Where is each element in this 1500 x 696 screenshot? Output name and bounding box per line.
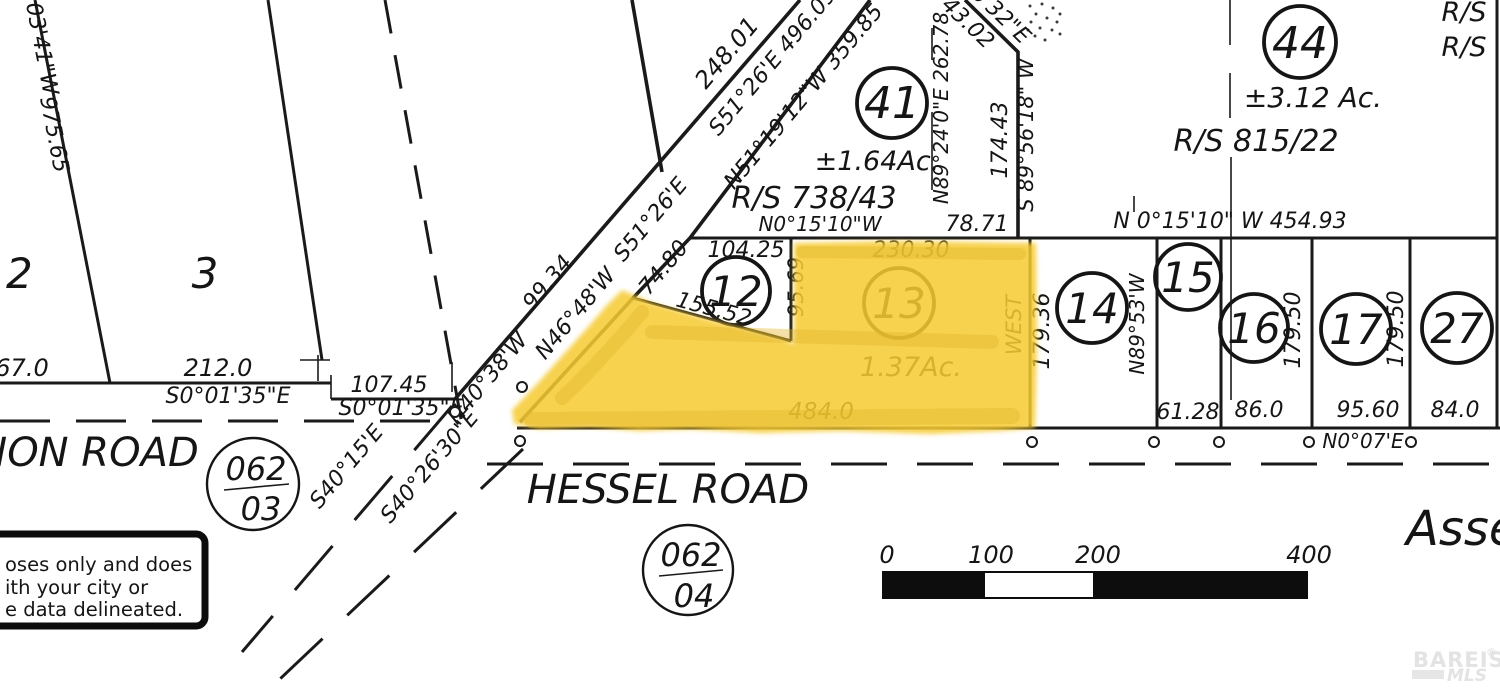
parcel-number-27: 27 xyxy=(1430,304,1484,353)
page-ref-top: 062 xyxy=(225,450,286,488)
bearing-label: S40°26'30"E xyxy=(376,405,485,528)
road-funnel-line xyxy=(632,0,662,172)
parcel-number-44: 44 xyxy=(1272,18,1328,69)
plat-map-canvas: 03'41"W 975.65 2 3 67.0 212.0 S0°01'35"E… xyxy=(0,0,1500,696)
stipple-dots xyxy=(1027,3,1062,42)
bareis-mls-watermark: BAREIS ® MLS xyxy=(1412,646,1500,686)
distance-label: 84.0 xyxy=(1431,398,1480,423)
bearing-label: S 89°56'18" W xyxy=(1014,57,1038,212)
disclaimer-line-3: e data delineated. xyxy=(5,598,183,621)
distance-label: 78.71 xyxy=(946,212,1009,237)
page-ref-bottom: 03 xyxy=(241,490,282,528)
page-ref-bottom: 04 xyxy=(674,577,715,615)
page-ref-top: 062 xyxy=(660,536,721,574)
scale-tick-0: 0 xyxy=(879,541,894,569)
area-label-41: ±1.64Ac. xyxy=(815,146,940,177)
scale-bar-seg-1 xyxy=(883,572,985,598)
disclaimer-box: oses only and does ith your city or e da… xyxy=(0,534,205,626)
bearing-label: N89°53'W xyxy=(1125,272,1149,374)
distance-label: 174.43 xyxy=(988,102,1013,179)
survey-ref-41: R/S 738/43 xyxy=(731,181,896,216)
bearing-label: N0°15'10"W xyxy=(758,212,882,236)
scale-tick-400: 400 xyxy=(1286,541,1332,569)
distance-label: 975.65 xyxy=(34,94,73,174)
bearing-label: S40°15'E xyxy=(305,420,389,513)
scale-bar: 0 100 200 400 xyxy=(879,541,1332,598)
sw-road-edge-2 xyxy=(262,449,523,696)
watermark-bar xyxy=(1412,670,1444,679)
page-ref-062-04: 062 04 xyxy=(643,525,733,615)
parcel-number-41: 41 xyxy=(864,78,920,129)
road-name-hessel: HESSEL ROAD xyxy=(527,467,809,513)
parcel-number-12: 12 xyxy=(709,267,762,316)
parcel-13-highlight xyxy=(512,241,1037,434)
distance-label: 67.0 xyxy=(0,354,49,382)
bearing-label: N 0°15'10" W 454.93 xyxy=(1113,209,1346,234)
disclaimer-line-1: oses only and does xyxy=(5,553,192,576)
distance-label: 212.0 xyxy=(184,354,253,382)
parcel-number-16: 16 xyxy=(1227,304,1280,353)
lot-line-2-3 xyxy=(268,0,322,360)
distance-label: 107.45 xyxy=(351,373,428,398)
parcel-number-2: 2 xyxy=(6,249,33,298)
distance-label: 179.50 xyxy=(1281,292,1306,369)
parcel-number-3: 3 xyxy=(192,249,219,298)
watermark-sub: MLS xyxy=(1447,666,1487,686)
scale-tick-200: 200 xyxy=(1075,541,1121,569)
disclaimer-line-2: ith your city or xyxy=(5,576,149,599)
bearing-label: 03'41"W xyxy=(20,0,63,98)
assessor-corner-text: Asse xyxy=(1403,501,1500,557)
survey-ref-top-1: R/S xyxy=(1442,0,1487,28)
distance-label: 179.50 xyxy=(1384,291,1409,368)
survey-ref-top-2: R/S xyxy=(1442,32,1487,63)
bearing-label: S0°01'35"E xyxy=(338,396,463,421)
bearing-label: S0°01'35"E xyxy=(165,384,290,409)
distance-label: 61.28 xyxy=(1157,400,1220,425)
assessor-parcel-map: 03'41"W 975.65 2 3 67.0 212.0 S0°01'35"E… xyxy=(0,0,1500,696)
bearing-label: N89°24'0"E 262.78 xyxy=(929,12,953,204)
watermark-reg: ® xyxy=(1486,646,1497,659)
parcel-number-15: 15 xyxy=(1161,253,1214,302)
area-label-44: ±3.12 Ac. xyxy=(1244,81,1382,114)
road-name-non: NON ROAD xyxy=(0,430,199,476)
scale-bar-seg-2 xyxy=(1093,572,1307,598)
distance-label: 95.60 xyxy=(1337,398,1400,423)
bearing-label: N0°07'E xyxy=(1322,429,1404,453)
page-ref-062-03: 062 03 xyxy=(207,438,299,530)
parcel-number-14: 14 xyxy=(1065,284,1118,333)
distance-label: 86.0 xyxy=(1235,398,1284,423)
scale-tick-100: 100 xyxy=(968,541,1014,569)
survey-ref-44: R/S 815/22 xyxy=(1173,124,1338,159)
parcel-number-17: 17 xyxy=(1329,305,1383,354)
